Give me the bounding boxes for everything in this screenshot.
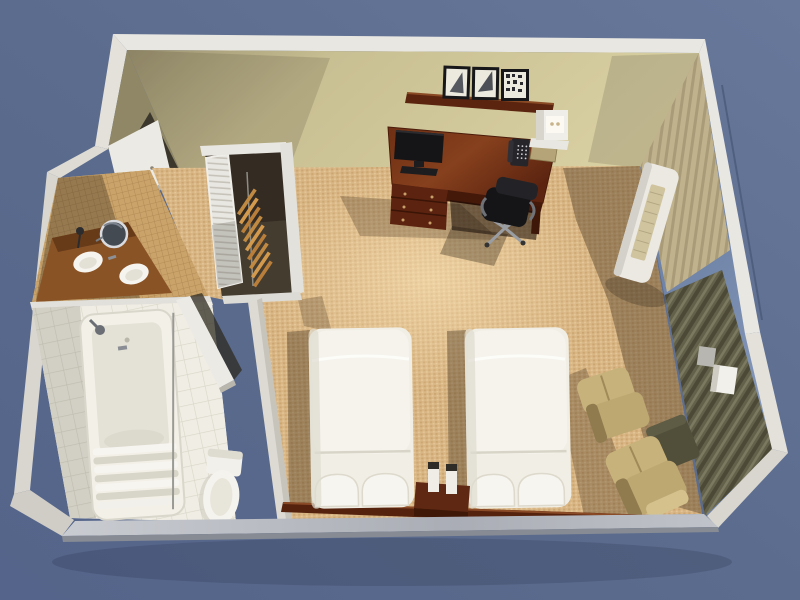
bed-2-fold (471, 451, 567, 453)
bed-1 (308, 327, 414, 509)
tv (394, 130, 444, 176)
desk-phone (507, 138, 530, 166)
room-drop-shadow (52, 538, 732, 586)
wall-fixture (76, 227, 84, 235)
bed-2 (464, 327, 571, 509)
screenshot-root (0, 0, 800, 600)
bed-1-fold (315, 451, 411, 453)
room-render (0, 0, 800, 600)
desk-drawers (390, 184, 448, 230)
picture-frames (442, 66, 529, 101)
bathtub (79, 309, 187, 521)
